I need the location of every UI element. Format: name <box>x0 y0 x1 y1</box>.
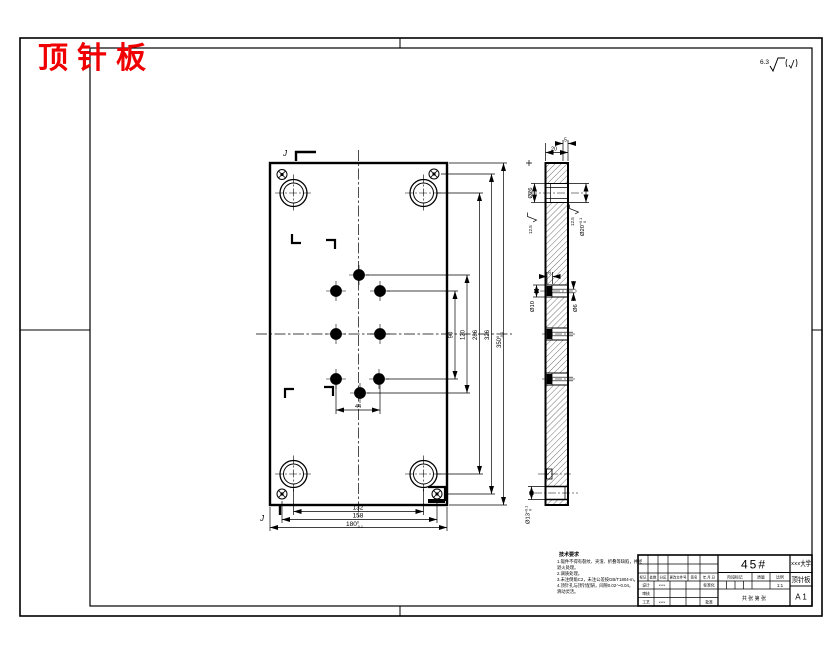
tb-approve-label: 批准 <box>705 600 713 605</box>
roughness-value: 12.5 <box>570 217 575 226</box>
dim-bottom-bore: Ø13+0.10 <box>525 506 533 524</box>
dim-right-4: 326 <box>485 329 491 340</box>
dim-plate-width: 1800-0.1 <box>346 521 363 529</box>
roughness-mark: 12.5 <box>528 213 537 235</box>
tb-header-date: 年.月.日 <box>703 575 715 580</box>
note-line: 1.锻件不得有裂纹、夹渣、折叠等缺陷，并经 <box>557 558 643 565</box>
roughness-value: 6.3 <box>760 59 769 66</box>
general-roughness-symbol: 6.3 <box>760 58 797 71</box>
title-block: 标记 处数 分区 更改文件号 签名 年.月.日 设计 ××× 标准化 审核 工艺… <box>638 555 812 606</box>
sheet-count: 共 张 第 张 <box>742 595 766 602</box>
cad-drawing-sheet: 顶针板 6.3 <box>0 0 830 654</box>
sheet-size: A 1 <box>795 593 807 602</box>
dim-bore-right: Ø20+0.10 <box>579 218 587 236</box>
title-block-grid <box>638 555 812 606</box>
tb-design-label: 设计 <box>642 583 650 588</box>
tb-header-docno: 更改文件号 <box>670 575 688 580</box>
mass-label: 质量 <box>757 575 765 580</box>
scale-label: 比例 <box>776 575 784 580</box>
dim-pin-spacing: 44 <box>355 404 361 410</box>
dim-right-2: 120 <box>461 329 467 340</box>
dim-pin-depth: 6 <box>548 271 551 277</box>
dim-right-3: 286 <box>473 329 479 340</box>
roughness-check-icon <box>770 58 785 71</box>
dim-right-1: 90 <box>449 331 455 338</box>
dim-thickness: 20 <box>551 147 557 153</box>
roughness-value: 12.5 <box>528 225 533 234</box>
side-section-view: 20 5 Ø26 Ø20+0.10 12.5 12.5 6 Ø10 Ø6 Ø13… <box>525 138 590 525</box>
org-name: ×××大学 <box>791 558 811 568</box>
section-pin-hole <box>542 373 575 385</box>
top-bore <box>529 184 585 203</box>
tb-header-mark: 标记 <box>640 575 647 580</box>
note-line: 2.调质处理。 <box>557 570 582 577</box>
dim-bottom-2: 158 <box>353 513 364 520</box>
note-line: 退火处理。 <box>557 564 578 571</box>
drawing-svg: 顶针板 6.3 <box>0 0 830 654</box>
tb-process-label: 工艺 <box>642 600 650 605</box>
section-label-top: J <box>282 149 288 158</box>
dim-bore-left: Ø26 <box>528 188 534 199</box>
dim-bottom-1: 132 <box>353 505 364 512</box>
notes-title: 技术要求 <box>559 551 580 558</box>
dim-pin-hole: Ø6 <box>573 304 579 312</box>
part-name: 顶针板 <box>792 575 811 584</box>
front-view: J J <box>256 149 512 531</box>
bottom-counterbore <box>534 487 578 500</box>
section-label-bottom: J <box>259 514 265 523</box>
roughness-check-small-icon <box>789 60 794 68</box>
dim-step: 5 <box>564 138 567 144</box>
section-pin-hole <box>542 328 575 340</box>
section-arrow-top <box>296 152 316 161</box>
tb-std-label: 标准化 <box>703 583 715 588</box>
roughness-check-icon <box>528 213 537 223</box>
detail-flag-icon <box>428 499 445 503</box>
note-line: 3.未注倒角C2，未注公差按GB/T1804-m。 <box>557 576 638 583</box>
page-title: 顶针板 <box>38 42 155 75</box>
paren-right <box>796 59 797 67</box>
inner-border <box>90 48 812 606</box>
roughness-mark: 12.5 <box>570 205 579 227</box>
tb-check-label: 审核 <box>642 591 650 596</box>
tb-header-count: 处数 <box>650 575 657 580</box>
tb-process-sig: ××× <box>659 601 666 605</box>
tb-header-zone: 分区 <box>660 575 667 580</box>
dim-pin-cbore: Ø10 <box>530 301 536 312</box>
paren-left <box>786 59 787 67</box>
tb-header-sign: 签名 <box>691 575 698 580</box>
tb-design-sig: ××× <box>659 584 666 588</box>
datum-cross-icon <box>526 160 532 166</box>
stage-mark-label: 阶段标记 <box>727 575 742 580</box>
scale-value: 1:1 <box>777 583 784 588</box>
note-line: 4.顶针孔与顶针配研，间隙0.02～0.04， <box>557 582 633 589</box>
technical-notes: 技术要求 1.锻件不得有裂纹、夹渣、折叠等缺陷，并经 退火处理。 2.调质处理。… <box>557 551 643 595</box>
roughness-check-icon <box>570 205 579 215</box>
material-label: 45# <box>741 558 767 572</box>
note-line: 滑动灵活。 <box>557 588 578 595</box>
